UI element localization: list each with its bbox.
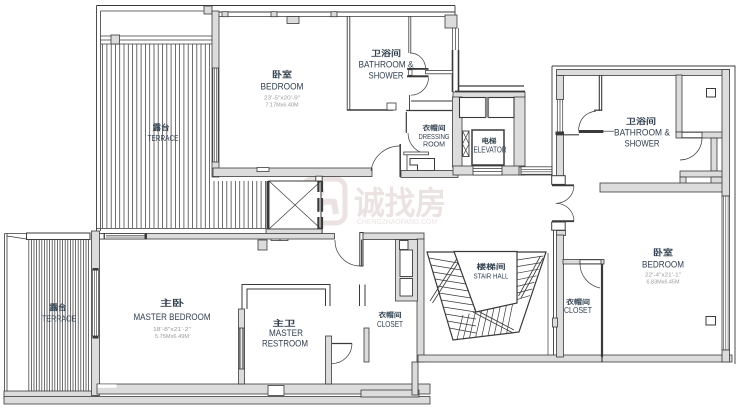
svg-text:SHOWER: SHOWER xyxy=(625,139,660,149)
svg-text:诚找房: 诚找房 xyxy=(354,185,446,221)
svg-text:电梯: 电梯 xyxy=(482,136,498,145)
svg-text:卧室: 卧室 xyxy=(272,70,293,80)
svg-text:ELEVATOR: ELEVATOR xyxy=(474,146,507,155)
svg-text:STAIR HALL: STAIR HALL xyxy=(474,272,509,281)
svg-text:露台: 露台 xyxy=(153,122,171,132)
svg-text:RESTROOM: RESTROOM xyxy=(262,339,308,349)
svg-text:7.17Mx6.40M: 7.17Mx6.40M xyxy=(266,103,299,109)
svg-text:5.75Mx6.49M: 5.75Mx6.49M xyxy=(155,334,189,340)
svg-text:MASTER: MASTER xyxy=(269,328,303,338)
svg-text:ROOM: ROOM xyxy=(423,140,445,149)
svg-text:6.83Mx6.45M: 6.83Mx6.45M xyxy=(647,280,680,286)
svg-text:22'-4"x21'-1": 22'-4"x21'-1" xyxy=(645,273,681,279)
svg-text:衣帽间: 衣帽间 xyxy=(379,310,403,319)
svg-text:BATHROOM &: BATHROOM & xyxy=(359,60,414,70)
svg-text:18'-8"x21'-2": 18'-8"x21'-2" xyxy=(153,327,191,333)
svg-text:露台: 露台 xyxy=(50,302,68,312)
svg-text:BEDROOM: BEDROOM xyxy=(642,260,684,270)
svg-text:BATHROOM &: BATHROOM & xyxy=(614,128,670,138)
svg-text:SHOWER: SHOWER xyxy=(369,71,404,81)
svg-text:23'-5"x20'-9": 23'-5"x20'-9" xyxy=(264,96,300,102)
svg-text:CHENGZHAOFANG.COM: CHENGZHAOFANG.COM xyxy=(357,217,437,226)
svg-text:TERRACE: TERRACE xyxy=(148,133,179,143)
svg-text:楼梯间: 楼梯间 xyxy=(477,262,506,271)
svg-text:CLOSET: CLOSET xyxy=(377,320,403,329)
svg-text:衣帽间: 衣帽间 xyxy=(423,123,447,132)
svg-text:MASTER BEDROOM: MASTER BEDROOM xyxy=(134,312,211,322)
svg-text:主卫: 主卫 xyxy=(273,318,296,328)
svg-text:CLOSET: CLOSET xyxy=(564,306,592,315)
svg-text:主卧: 主卧 xyxy=(160,298,185,308)
svg-text:BEDROOM: BEDROOM xyxy=(261,82,304,92)
svg-text:衣帽间: 衣帽间 xyxy=(566,297,591,306)
svg-text:卫浴间: 卫浴间 xyxy=(371,48,401,58)
svg-text:TERRACE: TERRACE xyxy=(42,315,76,324)
svg-text:卫浴间: 卫浴间 xyxy=(626,116,656,126)
svg-text:卧室: 卧室 xyxy=(653,248,674,258)
